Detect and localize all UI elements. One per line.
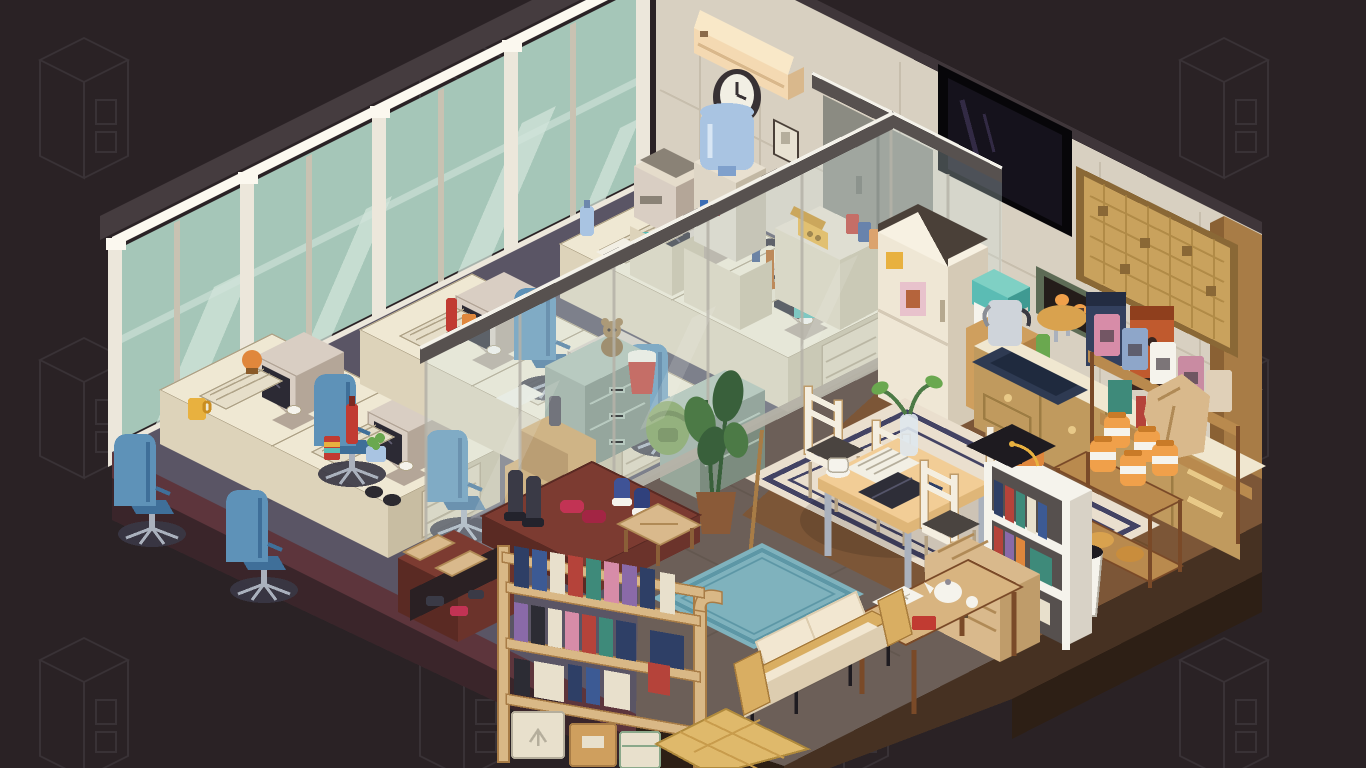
sticky-note[interactable] — [886, 252, 903, 269]
fridge-poster[interactable] — [900, 282, 926, 316]
snack-box[interactable] — [912, 616, 936, 630]
coffee-cup[interactable] — [826, 458, 850, 478]
scene-canvas — [0, 0, 1366, 768]
small-cup[interactable] — [966, 596, 978, 608]
bread-loaf[interactable] — [1037, 305, 1087, 331]
game-viewport — [0, 0, 1366, 768]
